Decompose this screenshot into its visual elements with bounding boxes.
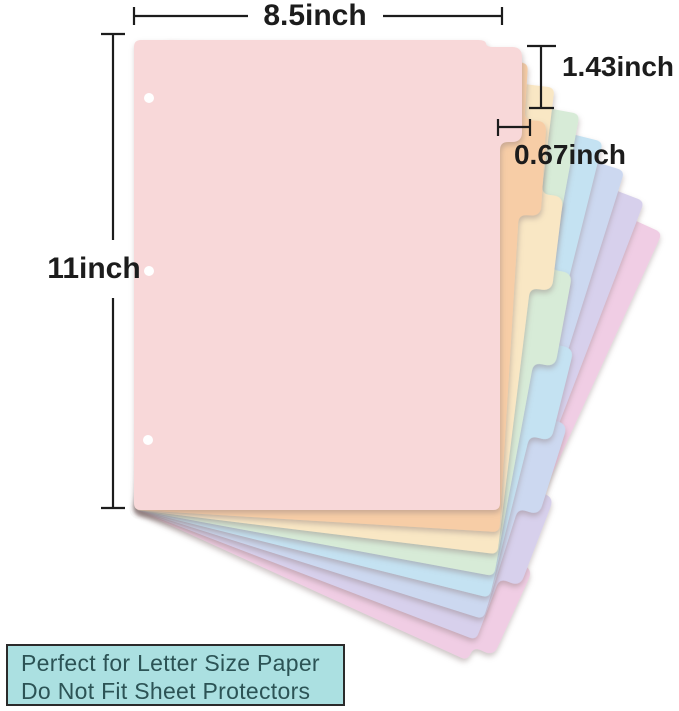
tab-depth-dimension-line — [498, 119, 530, 136]
note-box: Perfect for Letter Size Paper Do Not Fit… — [6, 644, 345, 706]
tab-depth-dimension-label: 0.67inch — [514, 139, 626, 171]
tab-height-dimension-label: 1.43inch — [562, 51, 674, 83]
height-dimension-label: 11inch — [47, 252, 140, 286]
note-line-1: Perfect for Letter Size Paper — [21, 649, 343, 677]
tab-height-dimension-line — [527, 46, 556, 108]
dimension-annotations — [0, 0, 679, 711]
width-dimension-label: 8.5inch — [263, 0, 366, 33]
note-line-2: Do Not Fit Sheet Protectors — [21, 677, 343, 705]
product-diagram: 8.5inch 11inch 1.43inch 0.67inch Perfect… — [0, 0, 679, 711]
